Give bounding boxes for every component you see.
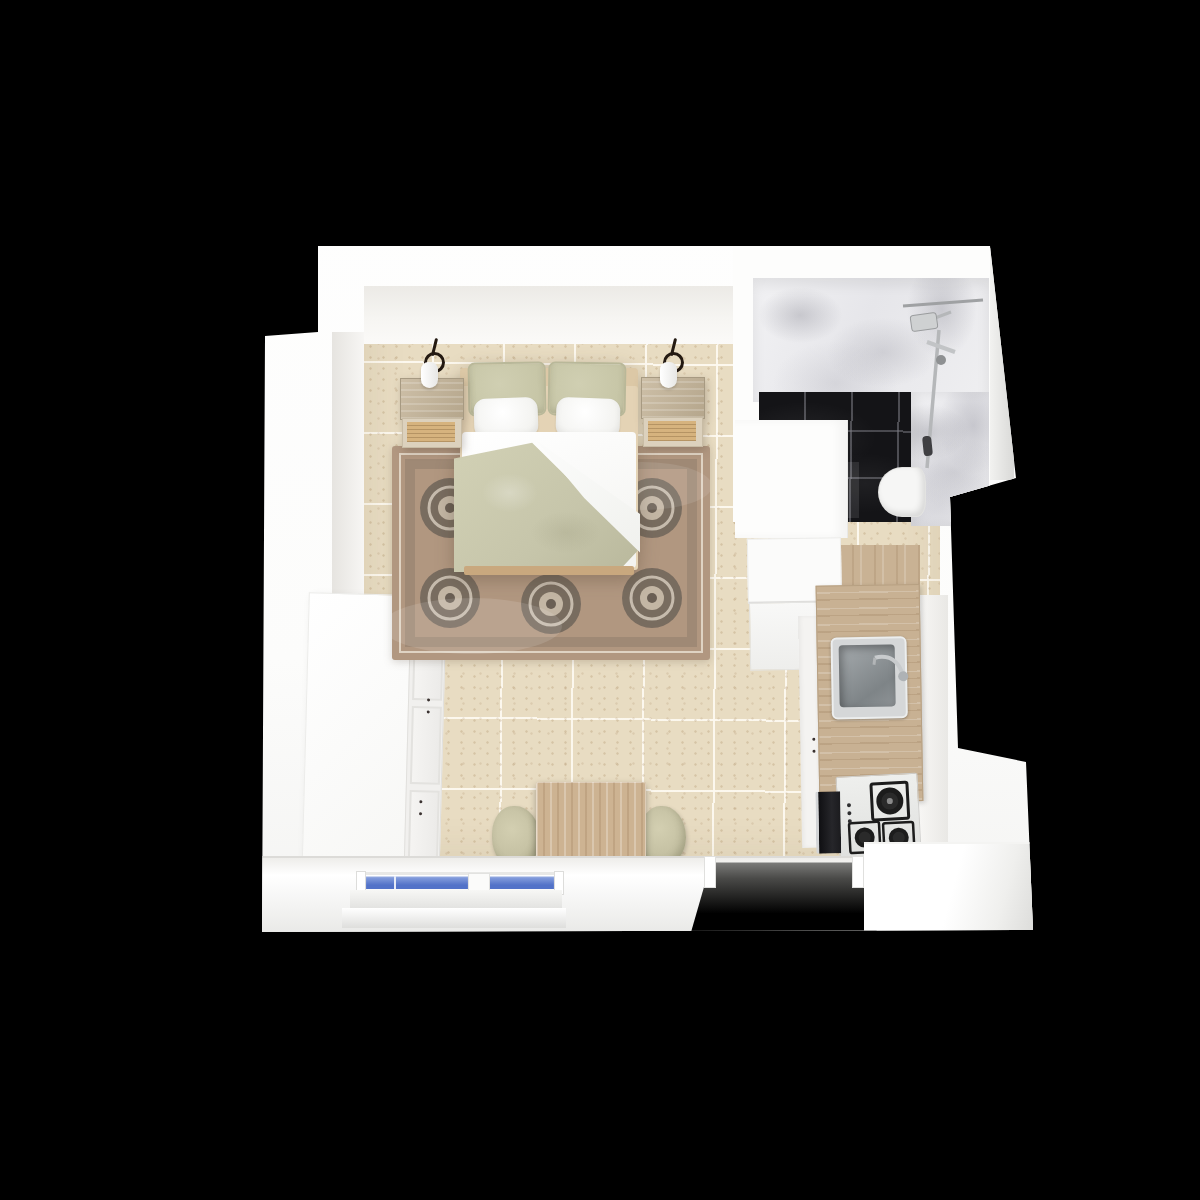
- kitchen-right-wall-face: [918, 595, 948, 855]
- sconce-shade: [660, 362, 677, 388]
- cabinet-knob: [812, 750, 815, 753]
- window-sill: [350, 890, 562, 908]
- window-pane-left: [366, 876, 468, 889]
- shower-fixture-icon: [883, 286, 989, 522]
- window-mullion: [394, 876, 396, 889]
- dining-table: [536, 782, 646, 864]
- wall-sconce-left: [420, 336, 448, 390]
- double-bed: [460, 360, 638, 575]
- window-unit: [336, 854, 572, 930]
- drawer-knob: [419, 800, 422, 803]
- door-jamb: [852, 856, 864, 888]
- faucet-icon: [867, 640, 912, 685]
- rattan-drawer: [648, 421, 696, 441]
- bed-frame-foot: [464, 566, 634, 575]
- kitchen-closet-block: [735, 420, 848, 538]
- apartment-footprint-walls: [0, 0, 1200, 1200]
- kitchen-counter: [798, 584, 923, 863]
- drawer-knob: [427, 698, 430, 701]
- scene-3d-floor-plan: [0, 0, 1200, 1200]
- nightstand-front: [402, 418, 462, 448]
- entry-doorway: [688, 856, 880, 936]
- door-jamb: [704, 856, 716, 888]
- window-pane-right: [488, 876, 554, 889]
- oven: [815, 791, 841, 853]
- cabinet-knob: [812, 738, 815, 741]
- drawer: [410, 706, 442, 785]
- wall-sconce-right: [659, 336, 687, 390]
- drawer-knob: [427, 710, 430, 713]
- window-frame: [358, 872, 562, 875]
- rattan-drawer: [407, 422, 455, 442]
- bottom-right-wall-block: [864, 842, 1034, 932]
- window-outer-ledge: [342, 908, 566, 928]
- bathroom-outer-wall-shade: [988, 248, 1014, 480]
- sconce-shade: [421, 362, 438, 388]
- drawer-knob: [419, 812, 422, 815]
- nightstand-front: [643, 417, 703, 447]
